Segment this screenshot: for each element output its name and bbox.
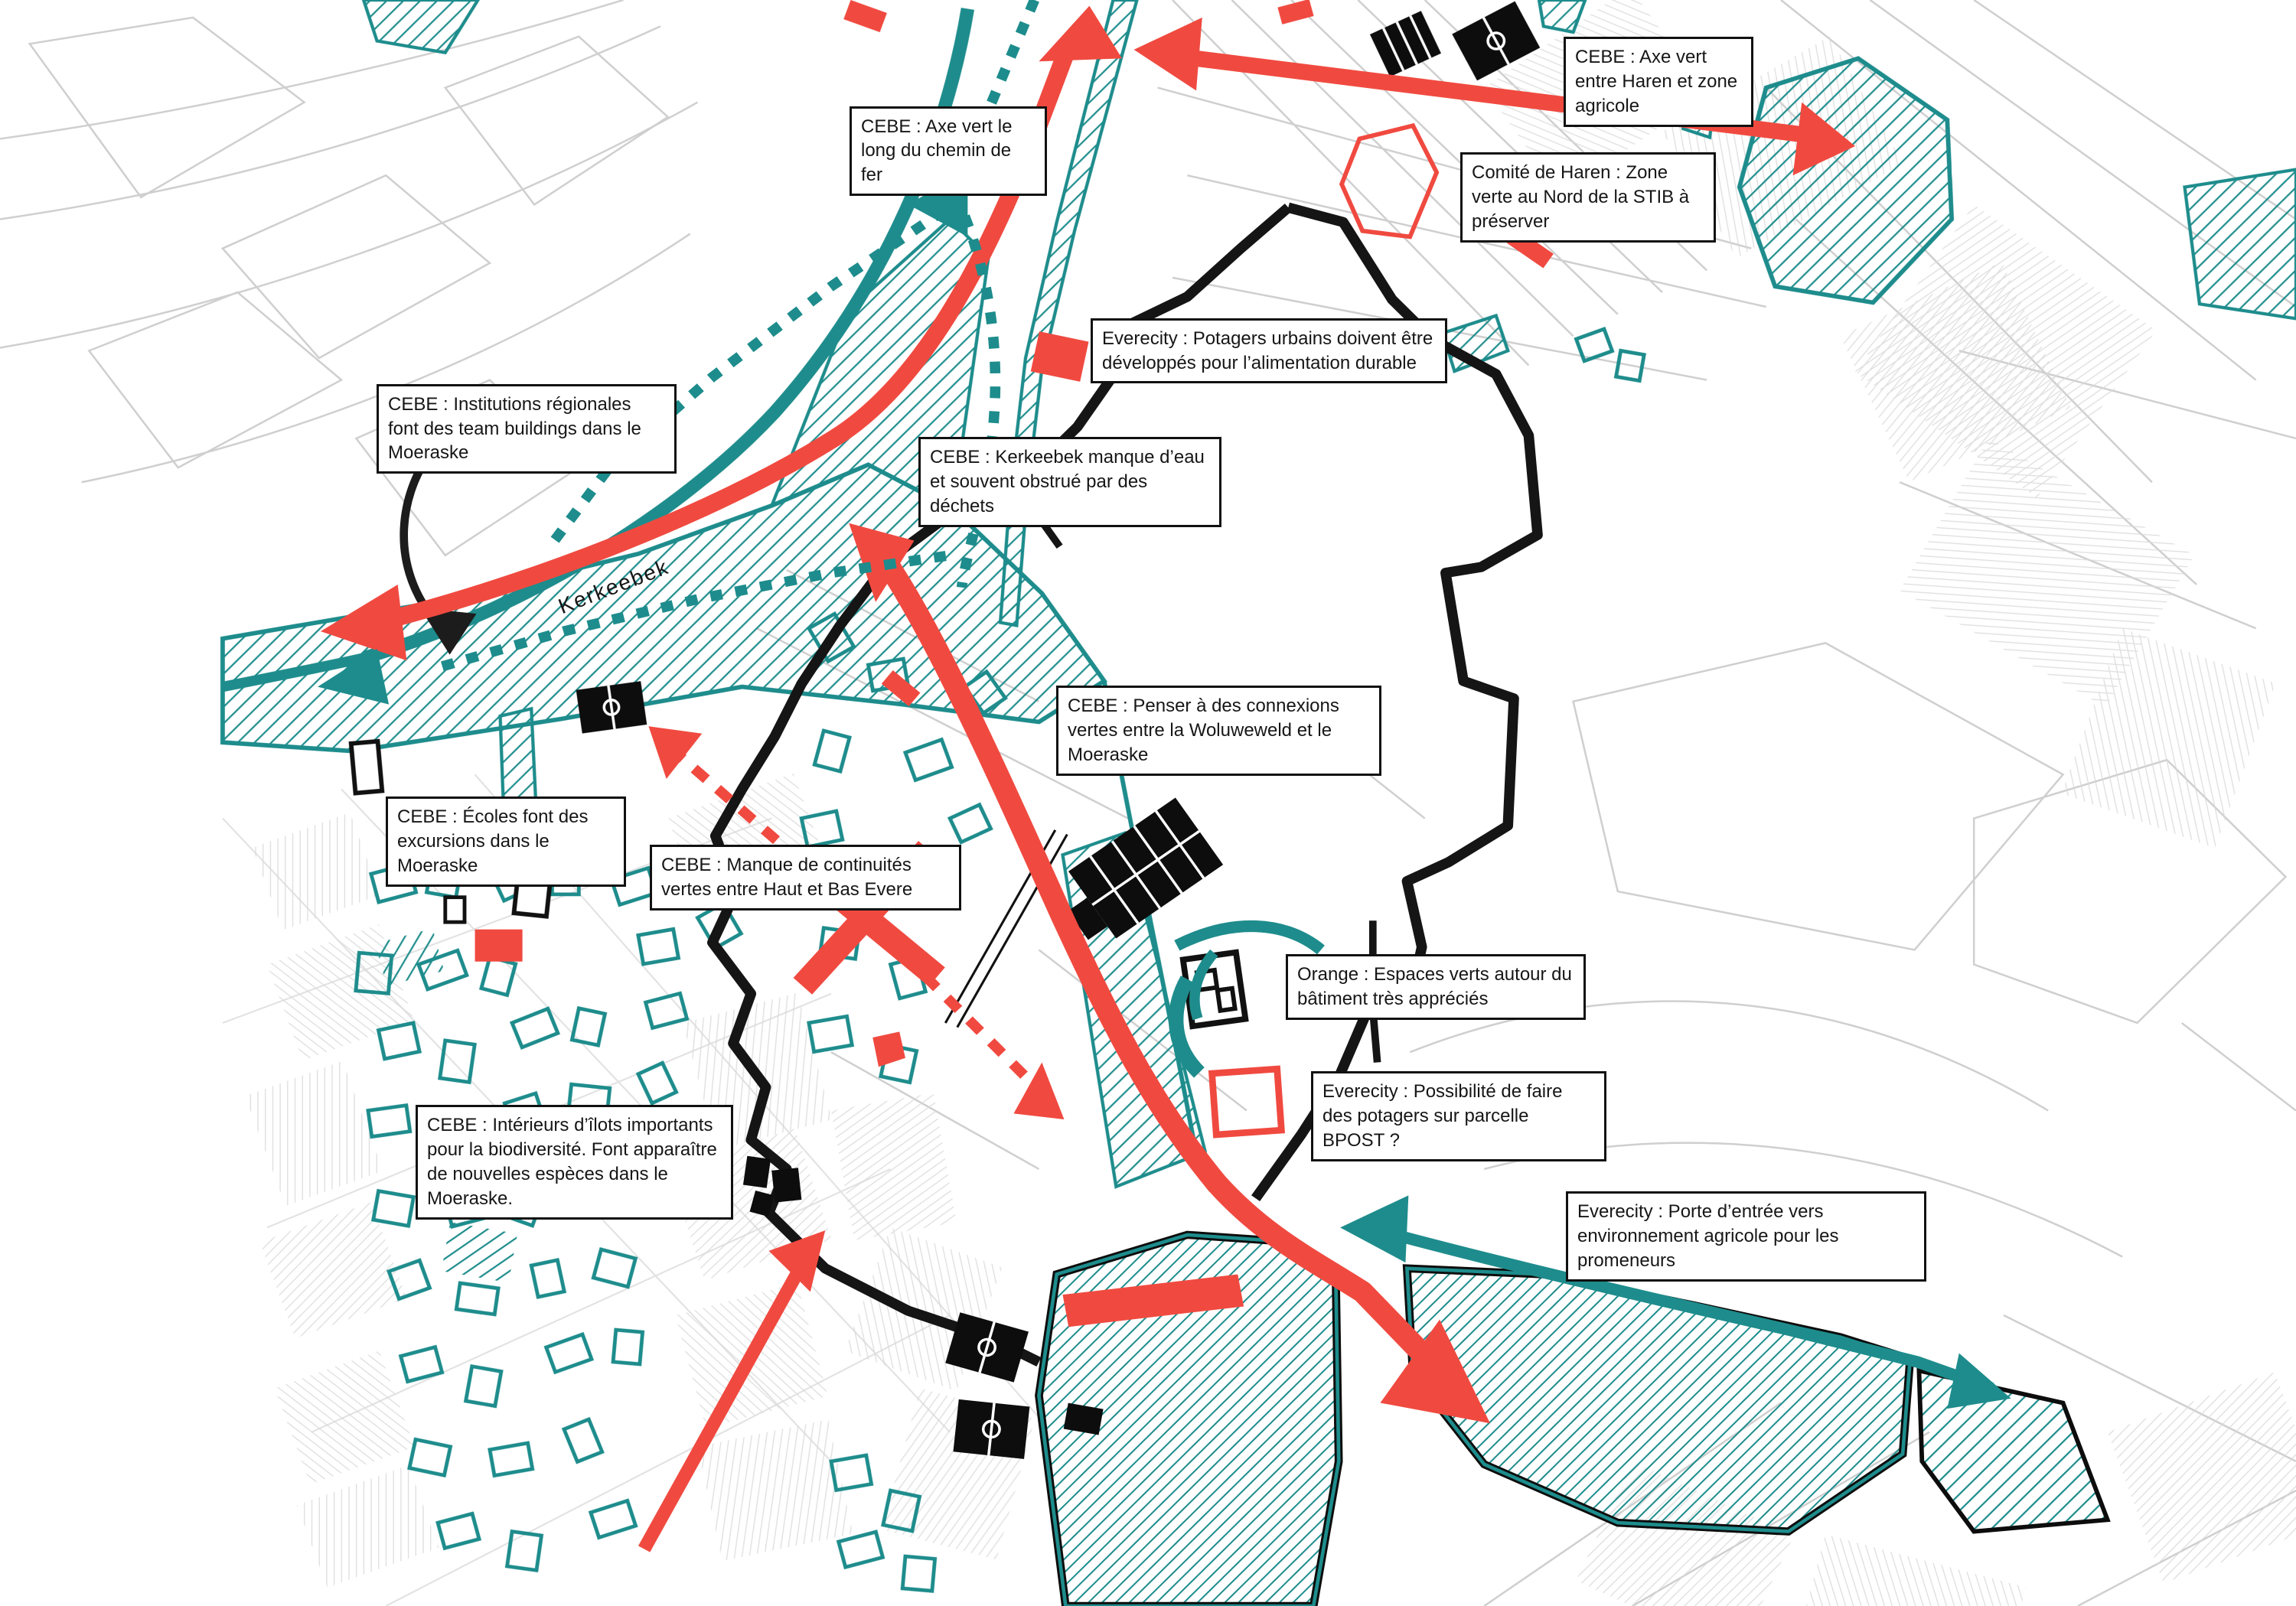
annotation-ecoles-excursions: CEBE : Écoles font des excursions dans l… <box>386 796 626 887</box>
railway-line <box>945 830 1067 1028</box>
annotation-espaces-verts-batiment: Orange : Espaces verts autour du bâtimen… <box>1286 954 1586 1020</box>
annotation-kerkeebek-manque-eau: CEBE : Kerkeebek manque d’eau et souvent… <box>918 437 1221 527</box>
soccer-field-icon <box>953 1399 1029 1459</box>
annotation-connexions-vertes: CEBE : Penser à des connexions vertes en… <box>1056 686 1381 776</box>
map-canvas: CEBE : Axe vert entre Haren et zone agri… <box>0 0 2296 1606</box>
annotation-text: Orange : Espaces verts autour du bâtimen… <box>1297 964 1572 1009</box>
annotation-text: Everecity : Porte d’entrée vers environn… <box>1577 1201 1839 1271</box>
annotation-text: CEBE : Écoles font des excursions dans l… <box>397 806 588 876</box>
agricultural-field-right <box>1407 1269 1910 1532</box>
annotation-text: CEBE : Kerkeebek manque d’eau et souvent… <box>930 447 1205 516</box>
annotation-interieurs-ilots: CEBE : Intérieurs d’îlots importants pou… <box>416 1105 733 1220</box>
annotation-manque-continuites: CEBE : Manque de continuités vertes entr… <box>650 845 961 911</box>
agricultural-field-corner <box>1919 1371 2107 1532</box>
annotation-zone-verte-stib: Comité de Haren : Zone verte au Nord de … <box>1460 152 1716 243</box>
soccer-field-icon <box>576 681 647 733</box>
annotation-text: Comité de Haren : Zone verte au Nord de … <box>1472 162 1689 232</box>
stib-green-zone-hatched <box>1342 125 1437 236</box>
bpost-parcel-outline <box>1212 1069 1282 1135</box>
annotation-text: CEBE : Axe vert entre Haren et zone agri… <box>1575 47 1737 116</box>
annotation-potagers-bpost: Everecity : Possibilité de faire des pot… <box>1311 1071 1606 1161</box>
annotation-team-buildings: CEBE : Institutions régionales font des … <box>377 384 677 474</box>
annotation-text: CEBE : Intérieurs d’îlots importants pou… <box>427 1115 717 1209</box>
map-drawing <box>0 0 2296 1606</box>
annotation-text: Everecity : Possibilité de faire des pot… <box>1322 1081 1562 1151</box>
annotation-text: Everecity : Potagers urbains doivent êtr… <box>1102 328 1433 373</box>
annotation-axe-vert-haren: CEBE : Axe vert entre Haren et zone agri… <box>1564 37 1753 127</box>
annotation-potagers-urbains: Everecity : Potagers urbains doivent êtr… <box>1091 318 1447 384</box>
annotation-porte-entree-agricole: Everecity : Porte d’entrée vers environn… <box>1566 1191 1926 1282</box>
annotation-text: CEBE : Penser à des connexions vertes en… <box>1068 695 1339 765</box>
annotation-text: CEBE : Manque de continuités vertes entr… <box>661 855 912 900</box>
annotation-text: CEBE : Institutions régionales font des … <box>388 394 641 464</box>
railway-green-axis-strip <box>1000 0 1137 625</box>
annotation-axe-vert-chemin-de-fer: CEBE : Axe vert le long du chemin de fer <box>850 106 1047 197</box>
annotation-text: CEBE : Axe vert le long du chemin de fer <box>861 116 1012 186</box>
